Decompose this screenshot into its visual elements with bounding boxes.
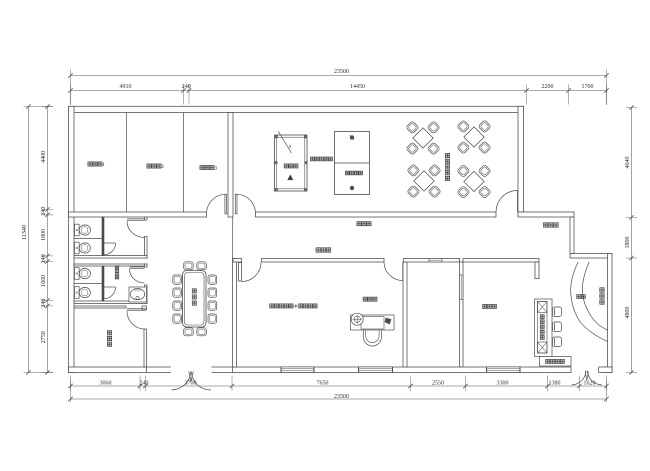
svg-text:3060: 3060 — [100, 381, 112, 387]
svg-text:2550: 2550 — [432, 381, 444, 387]
svg-text:14450: 14450 — [350, 84, 365, 90]
svg-text:240: 240 — [41, 254, 47, 263]
svg-text:23500: 23500 — [334, 394, 349, 400]
svg-text:4910: 4910 — [120, 84, 132, 90]
svg-text:240: 240 — [41, 299, 47, 308]
svg-text:1700: 1700 — [582, 84, 594, 90]
svg-text:1620: 1620 — [584, 381, 596, 387]
svg-text:1660: 1660 — [41, 275, 47, 287]
svg-text:2200: 2200 — [542, 84, 554, 90]
svg-text:240: 240 — [41, 207, 47, 216]
svg-text:4800: 4800 — [625, 307, 631, 319]
svg-text:3300: 3300 — [497, 381, 509, 387]
svg-text:3: 3 — [214, 166, 217, 172]
svg-text:1380: 1380 — [549, 381, 561, 387]
svg-text:4400: 4400 — [41, 151, 47, 163]
svg-text:11340: 11340 — [22, 225, 28, 240]
svg-text:240: 240 — [182, 84, 191, 90]
svg-text:1800: 1800 — [625, 237, 631, 249]
svg-text:3700: 3700 — [185, 381, 197, 387]
svg-text:4640: 4640 — [625, 157, 631, 169]
svg-text:1800: 1800 — [41, 229, 47, 241]
svg-text:23500: 23500 — [334, 69, 349, 75]
svg-text:2: 2 — [161, 164, 164, 170]
svg-text:240: 240 — [140, 381, 149, 387]
svg-text:7650: 7650 — [317, 381, 329, 387]
svg-text:2750: 2750 — [41, 331, 47, 343]
svg-text:1: 1 — [102, 162, 105, 168]
